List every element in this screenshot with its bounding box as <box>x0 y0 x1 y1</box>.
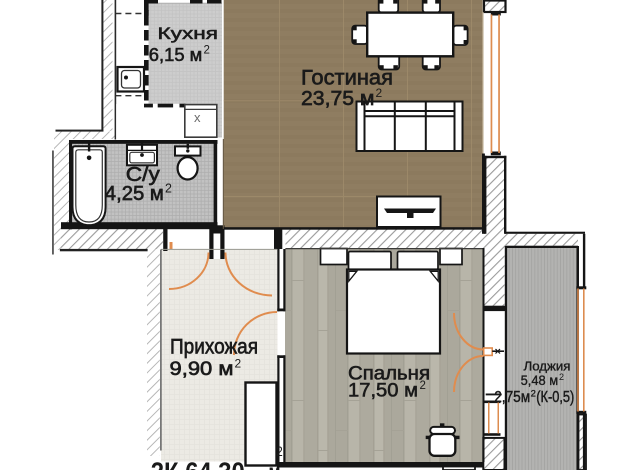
svg-text:17,50 м: 17,50 м <box>348 379 418 401</box>
svg-text:(К-0,5): (К-0,5) <box>536 389 574 406</box>
svg-text:23,75 м: 23,75 м <box>301 88 375 110</box>
svg-text:4,25 м: 4,25 м <box>105 183 164 205</box>
svg-text:Кухня: Кухня <box>158 25 219 43</box>
svg-text:2К 64,30: 2К 64,30 <box>151 457 245 470</box>
svg-text:2: 2 <box>559 372 564 382</box>
svg-text:Прихожая: Прихожая <box>170 335 258 358</box>
svg-text:2,75м: 2,75м <box>494 389 530 406</box>
svg-text:2: 2 <box>376 86 383 100</box>
svg-text:2: 2 <box>165 182 172 196</box>
svg-text:2: 2 <box>204 45 210 57</box>
svg-text:5,48 м: 5,48 м <box>521 372 559 388</box>
svg-text:9,90 м: 9,90 м <box>170 359 234 380</box>
svg-text:2: 2 <box>531 389 536 400</box>
svg-text:м: м <box>269 458 281 470</box>
svg-text:2: 2 <box>235 356 242 370</box>
svg-text:6,15 м: 6,15 м <box>149 45 203 65</box>
svg-text:x: x <box>194 110 201 125</box>
svg-text:2: 2 <box>420 380 426 392</box>
svg-text:2: 2 <box>276 444 283 459</box>
